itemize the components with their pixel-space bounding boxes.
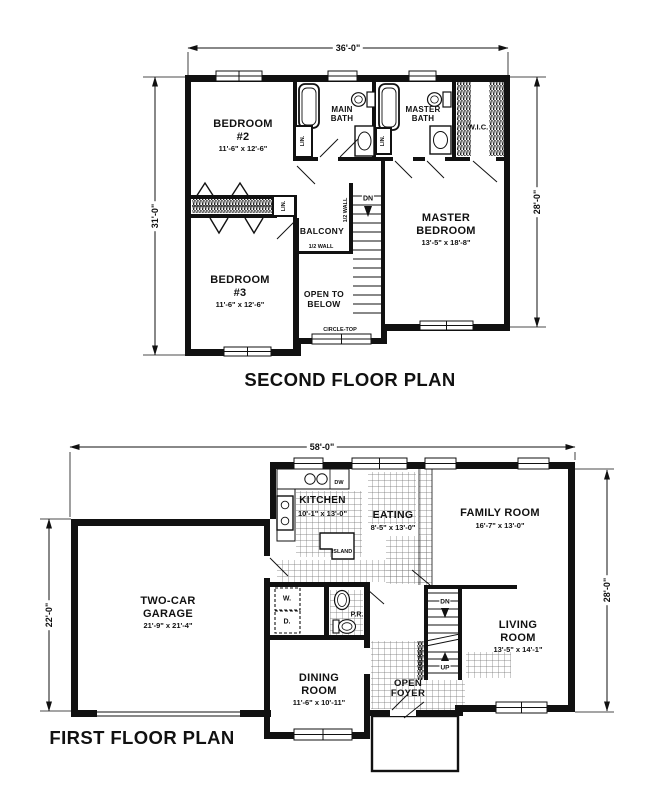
label-line: BALCONY	[294, 226, 350, 236]
label-line: #2	[198, 131, 288, 144]
label-line: CIRCLE-TOP	[323, 327, 357, 333]
label-line: ROOM	[284, 685, 354, 698]
label-line: W.	[283, 596, 291, 603]
dimension-right-label: 28'-0"	[602, 575, 612, 605]
label-line: 58'-0"	[310, 442, 334, 452]
master-bedroom-label: MASTER BEDROOM 13'-5" x 18'-8"	[400, 212, 492, 247]
label-line: 28'-0"	[602, 578, 612, 602]
label-line: ISLAND	[332, 549, 352, 555]
bedroom2-label: BEDROOM #2 11'-6" x 12'-6"	[198, 118, 288, 153]
stairs-dn-label: DN	[362, 196, 374, 203]
second-floor-title: SECOND FLOOR PLAN	[230, 369, 470, 391]
dining-room-label: DINING ROOM 11'-6" x 10'-11"	[284, 672, 354, 707]
dimension-width-label: 36'-0"	[333, 43, 363, 53]
label-line: LIN.	[300, 136, 306, 146]
dimension-left-label: 31'-0"	[150, 201, 160, 231]
label-line: 22'-0"	[44, 603, 54, 627]
stairs-up-label: UP	[439, 665, 450, 672]
open-foyer-label: OPEN FOYER	[382, 679, 434, 699]
label-line: DINING	[284, 672, 354, 685]
label-line: 8'-5" x 13'-0"	[362, 523, 424, 532]
family-room-label: FAMILY ROOM 16'-7" x 13'-0"	[444, 507, 556, 530]
toilet-icon	[333, 620, 356, 634]
first-floor-title: FIRST FLOOR PLAN	[38, 727, 246, 749]
label-line: RAILING	[418, 650, 424, 671]
label-line: 1/2 WALL	[343, 198, 349, 223]
label-line: BATH	[399, 114, 447, 123]
label-line: BEDROOM	[400, 225, 492, 238]
circle-top-label: CIRCLE-TOP	[323, 327, 357, 333]
linen-label: LIN.	[300, 136, 306, 146]
down-arrow-icon	[364, 206, 372, 217]
label-line: LIN.	[380, 136, 386, 146]
label-line: BEDROOM	[195, 274, 285, 287]
linen-label: LIN.	[281, 201, 287, 211]
sink-vanity-icon	[430, 126, 451, 154]
label-line: BATH	[320, 114, 364, 123]
bathtub-icon	[379, 84, 399, 130]
label-line: 13'-5" x 14'-1"	[487, 645, 549, 654]
up-arrow-icon	[441, 652, 449, 661]
island-label: ISLAND	[332, 549, 352, 555]
master-bath-label: MASTER BATH	[399, 105, 447, 123]
dryer-label: D.	[284, 619, 291, 626]
label-line: DN	[363, 196, 373, 203]
half-wall-label: 1/2 WALL	[343, 198, 349, 223]
label-line: FIRST FLOOR PLAN	[49, 727, 234, 748]
dimension-width-label: 58'-0"	[307, 442, 337, 452]
label-line: 11'-6" x 10'-11"	[284, 698, 354, 707]
powder-room-label: P.R.	[351, 612, 364, 619]
kitchen-label: KITCHEN 10'-1" x 13'-0"	[280, 495, 365, 518]
dishwasher-label: DW	[334, 480, 343, 486]
label-line: 11'-6" x 12'-6"	[195, 300, 285, 309]
label-line: GARAGE	[120, 608, 216, 621]
living-room-label: LIVING ROOM 13'-5" x 14'-1"	[487, 619, 549, 654]
bedroom3-label: BEDROOM #3 11'-6" x 12'-6"	[195, 274, 285, 309]
label-line: SECOND FLOOR PLAN	[244, 369, 455, 390]
label-line: DN	[440, 599, 449, 606]
label-line: 31'-0"	[150, 204, 160, 228]
label-line: FOYER	[382, 689, 434, 699]
label-line: MASTER	[400, 212, 492, 225]
label-line: OPEN TO	[300, 289, 348, 299]
wic-label: W.I.C.	[468, 123, 488, 132]
open-to-below-label: OPEN TO BELOW	[300, 289, 348, 309]
label-line: TWO-CAR	[120, 595, 216, 608]
garage-label: TWO-CAR GARAGE 21'-9" x 21'-4"	[120, 595, 216, 630]
label-line: 16'-7" x 13'-0"	[444, 521, 556, 530]
label-line: MAIN	[320, 105, 364, 114]
label-line: EATING	[362, 509, 424, 522]
front-porch	[372, 716, 458, 771]
label-line: LIVING	[487, 619, 549, 632]
sink-icon	[335, 591, 350, 610]
label-line: #3	[195, 287, 285, 300]
label-line: P.R.	[351, 612, 364, 619]
label-line: D.	[284, 619, 291, 626]
balcony-label: BALCONY	[294, 226, 350, 236]
dimension-right-label: 28'-0"	[532, 187, 542, 217]
floorplan-page: 36'-0" 31'-0" 28'-0" BEDROOM #2 11'-6" x…	[0, 0, 648, 810]
stairs-dn-label: DN	[439, 599, 450, 606]
label-line: MASTER	[399, 105, 447, 114]
label-line: KITCHEN	[280, 495, 365, 508]
half-wall-label: 1/2 WALL	[308, 244, 335, 250]
eating-label: EATING 8'-5" x 13'-0"	[362, 509, 424, 532]
railing-label: RAILING	[418, 650, 424, 671]
label-line: 1/2 WALL	[309, 244, 334, 250]
label-line: UP	[440, 665, 449, 672]
label-line: DW	[334, 480, 343, 486]
label-line: 10'-1" x 13'-0"	[280, 509, 365, 518]
label-line: LIN.	[281, 201, 287, 211]
label-line: BEDROOM	[198, 118, 288, 131]
label-line: 21'-9" x 21'-4"	[120, 621, 216, 630]
label-line: FAMILY ROOM	[444, 507, 556, 520]
label-line: W.I.C.	[468, 123, 488, 132]
sink-vanity-icon	[355, 126, 374, 156]
dimension-left-label: 22'-0"	[44, 600, 54, 630]
label-line: 28'-0"	[532, 190, 542, 214]
linen-label: LIN.	[380, 136, 386, 146]
washer-label: W.	[283, 596, 291, 603]
bathtub-icon	[299, 84, 319, 128]
label-line: 36'-0"	[336, 43, 360, 53]
label-line: 13'-5" x 18'-8"	[400, 238, 492, 247]
down-arrow-icon	[441, 608, 449, 618]
label-line: 11'-6" x 12'-6"	[198, 144, 288, 153]
main-bath-label: MAIN BATH	[320, 105, 364, 123]
label-line: BELOW	[300, 299, 348, 309]
label-line: ROOM	[487, 632, 549, 645]
